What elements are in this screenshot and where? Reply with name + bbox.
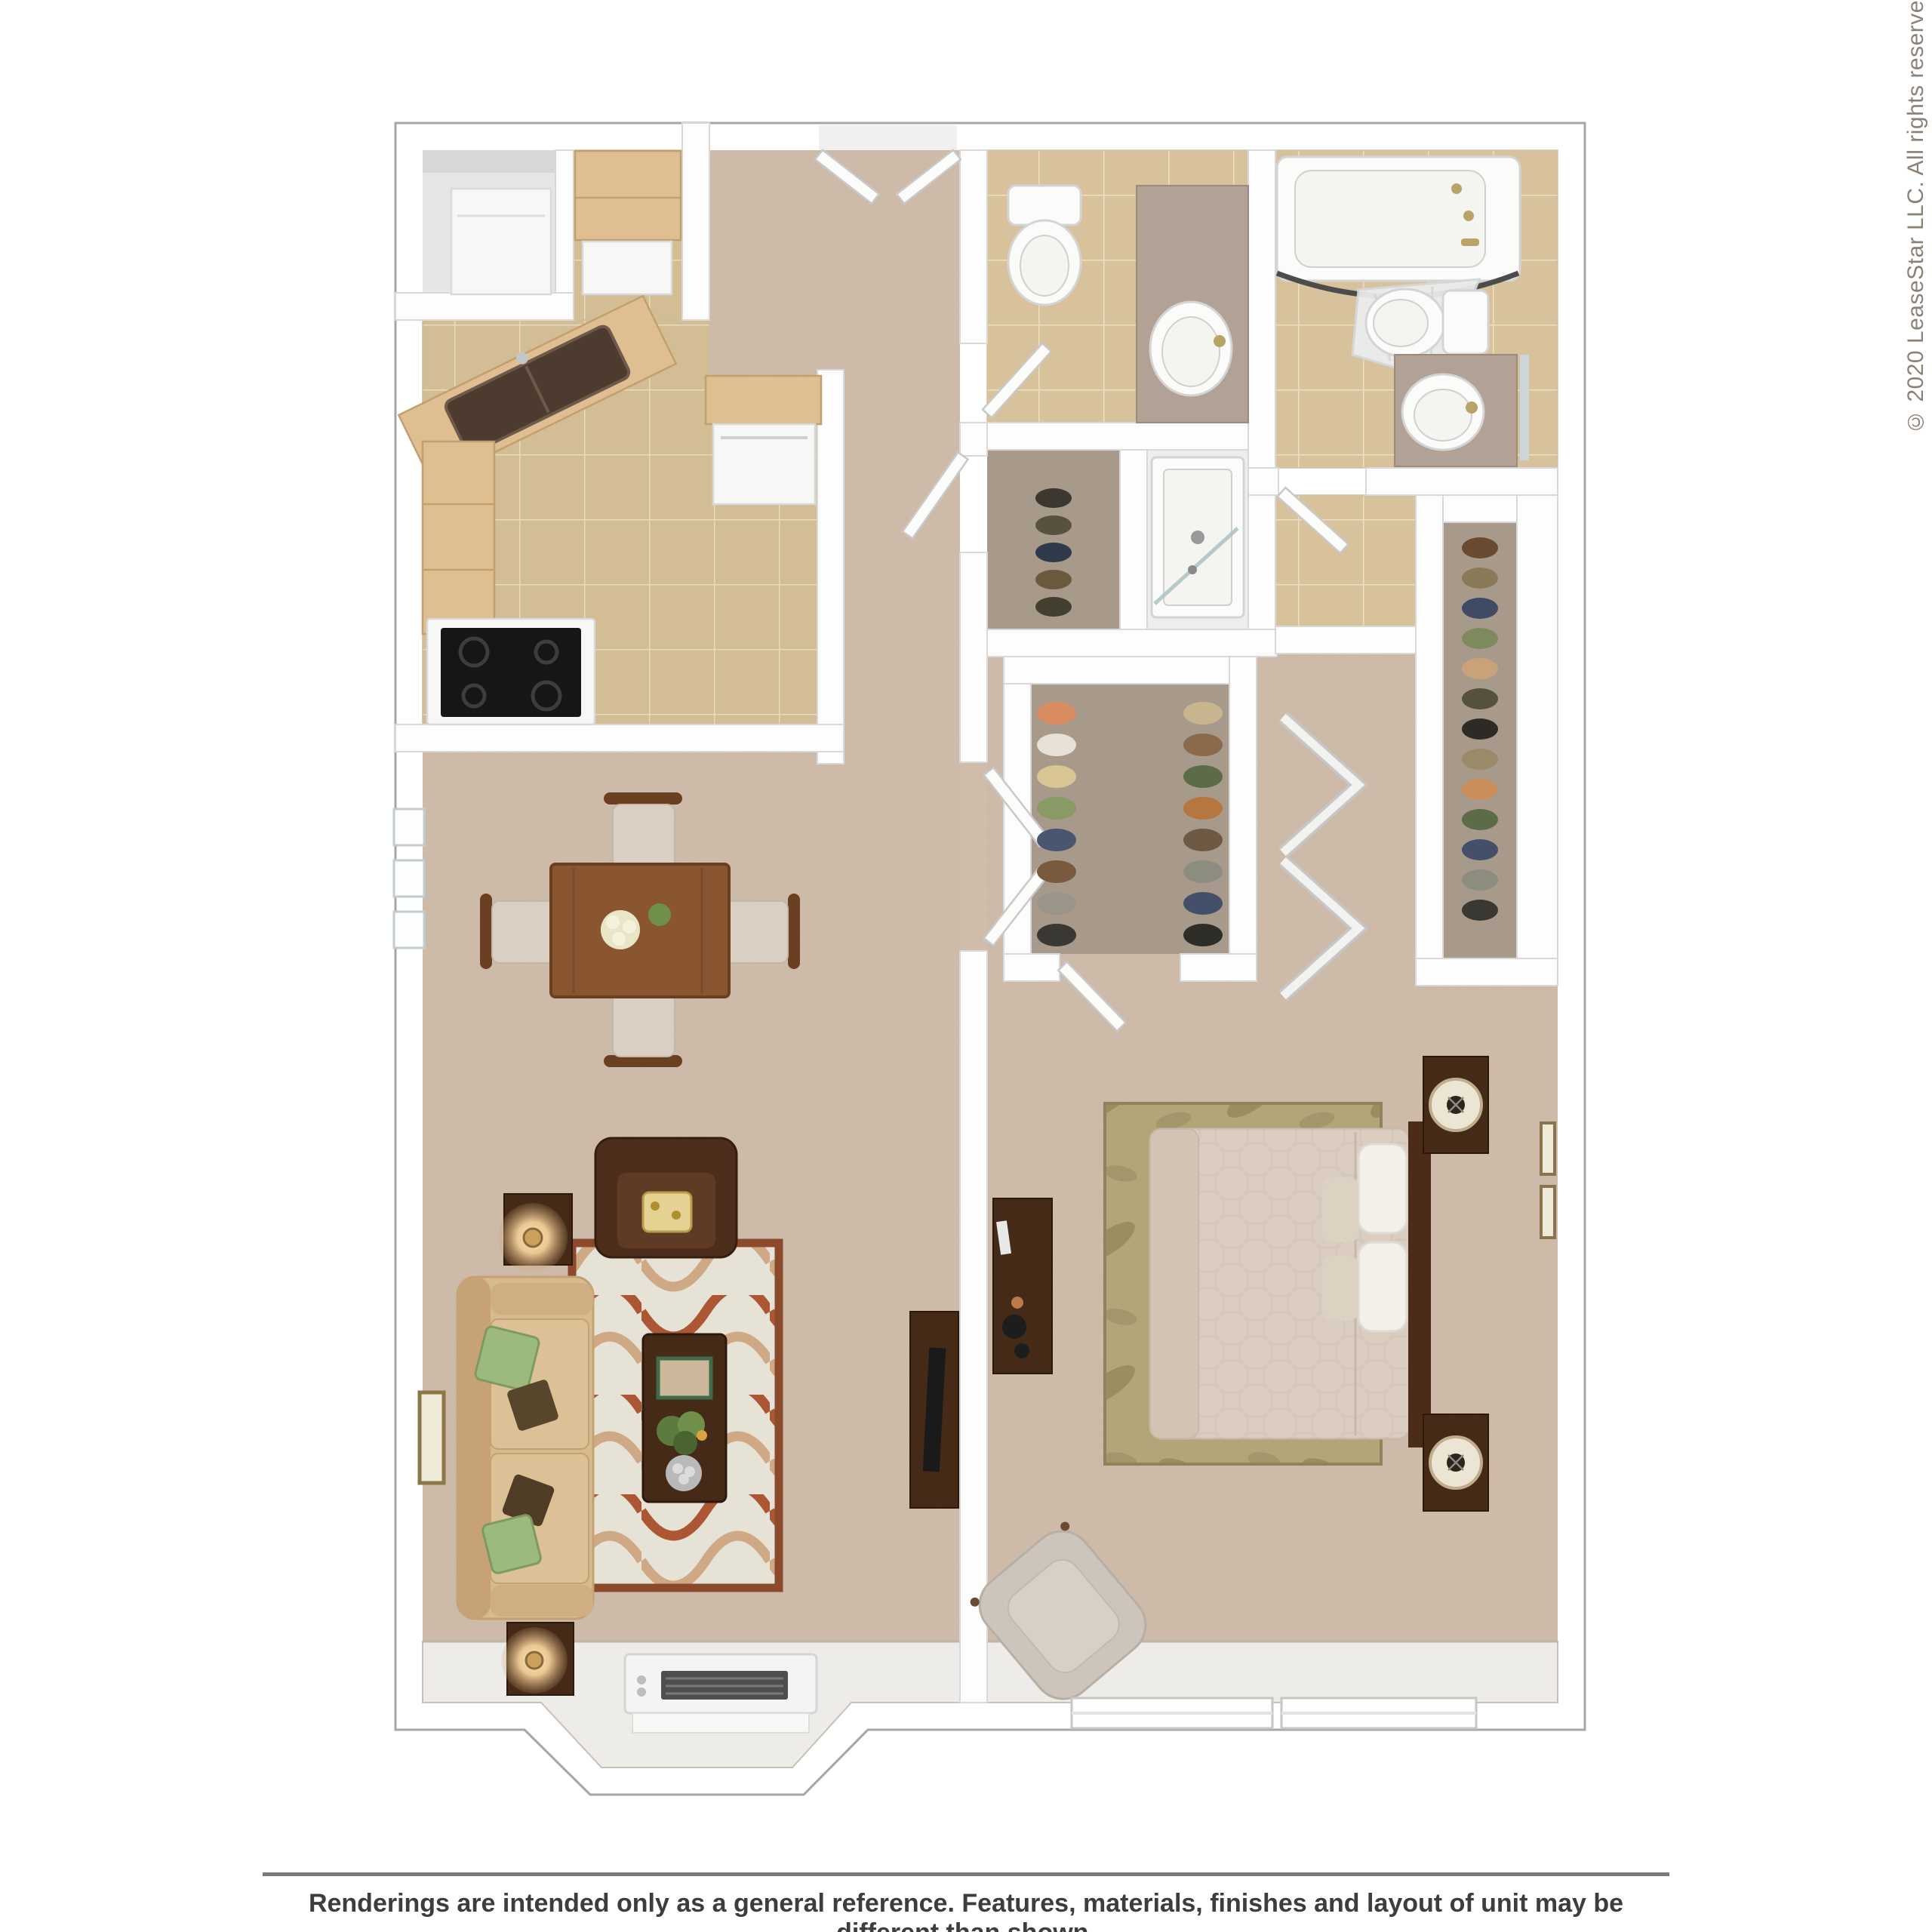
bed-pillow-1 bbox=[1358, 1144, 1407, 1233]
dishwasher-peninsula bbox=[706, 376, 821, 504]
clothing-item bbox=[1035, 597, 1072, 617]
green-pillow-top bbox=[474, 1325, 540, 1391]
dishwasher bbox=[713, 424, 815, 504]
dining-chair-east bbox=[724, 894, 800, 969]
wall-laundry-nook bbox=[555, 150, 574, 293]
nook-upper-cabinet bbox=[575, 151, 681, 198]
wall-baths-divider bbox=[1248, 150, 1275, 657]
wall-kitchen-living bbox=[395, 724, 844, 752]
entry-threshold bbox=[819, 125, 957, 150]
closet-wall-east bbox=[1517, 495, 1558, 986]
walkin-wall-east bbox=[1229, 657, 1257, 981]
clothing-item bbox=[1462, 718, 1498, 740]
wall-kitchen-hall bbox=[817, 370, 844, 764]
laundry-appliance bbox=[451, 189, 551, 294]
clothing-item bbox=[1462, 658, 1498, 679]
clothing-item bbox=[1035, 515, 1072, 535]
wall-linen-south bbox=[1275, 626, 1416, 654]
master-bath-mirror bbox=[1520, 355, 1529, 460]
clothing-item bbox=[1035, 543, 1072, 562]
side-table-north bbox=[498, 1194, 572, 1272]
master-toilet bbox=[1366, 289, 1488, 357]
clothing-item bbox=[1462, 900, 1498, 921]
clothing-item bbox=[1183, 702, 1223, 724]
closet-wall-west bbox=[1416, 495, 1443, 986]
half-bath-faucet bbox=[1214, 335, 1226, 347]
living-window-2 bbox=[394, 860, 424, 897]
half-bath-toilet bbox=[1008, 186, 1081, 305]
copyright-notice: © 2020 LeaseStar LLC. All rights reserve… bbox=[1903, 23, 1929, 434]
wall-laundry-south bbox=[395, 293, 574, 320]
bathtub bbox=[1277, 157, 1520, 281]
master-faucet bbox=[1466, 401, 1478, 414]
stove-cooktop bbox=[441, 628, 581, 717]
dresser bbox=[993, 1198, 1052, 1374]
clothing-item bbox=[1037, 797, 1076, 820]
nook-cart bbox=[583, 241, 672, 294]
clothing-item bbox=[1462, 537, 1498, 558]
accent-armchair bbox=[595, 1138, 737, 1257]
closet-wall-north bbox=[1443, 495, 1517, 522]
kitchen-left-counter bbox=[423, 441, 494, 634]
wall-art-living bbox=[420, 1392, 444, 1483]
accent-pillow-1 bbox=[1322, 1177, 1358, 1242]
walkin-wall-north bbox=[1004, 657, 1257, 684]
tv-console bbox=[910, 1312, 958, 1508]
wall-hall-bath-upper bbox=[960, 150, 987, 343]
clothing-item bbox=[1037, 829, 1076, 851]
clothing-item bbox=[1462, 839, 1498, 860]
bed bbox=[1150, 1121, 1431, 1447]
clothing-item bbox=[1462, 779, 1498, 800]
living-window-1 bbox=[394, 809, 424, 845]
range-stove bbox=[427, 619, 595, 724]
clothing-item bbox=[1037, 734, 1076, 756]
clothing-item bbox=[1037, 892, 1076, 915]
wall-hall-closet bbox=[960, 552, 987, 762]
headboard bbox=[1408, 1121, 1431, 1447]
table-plant bbox=[648, 903, 671, 926]
wall-halfbath-south bbox=[987, 423, 1248, 450]
clothing-item bbox=[1183, 892, 1223, 915]
dining-chair-north bbox=[604, 792, 682, 868]
living-window-3 bbox=[394, 912, 424, 948]
clothing-item bbox=[1183, 734, 1223, 756]
dining-chair-west bbox=[480, 894, 555, 969]
clothing-item bbox=[1462, 688, 1498, 709]
master-vanity bbox=[1395, 355, 1517, 466]
clothing-item bbox=[1037, 765, 1076, 788]
clothing-item bbox=[1462, 598, 1498, 619]
wall-nook-entry bbox=[682, 123, 709, 320]
closet-wall-south bbox=[1416, 958, 1558, 986]
nook-counter bbox=[575, 198, 681, 240]
laundry-closet-shadow bbox=[423, 150, 555, 173]
clothing-item bbox=[1037, 702, 1076, 724]
green-pillow-bottom bbox=[481, 1514, 542, 1574]
walkin-wall-south-b bbox=[1180, 954, 1257, 981]
clothing-item bbox=[1462, 628, 1498, 649]
clothing-item bbox=[1462, 568, 1498, 589]
wall-masterbath-south bbox=[1366, 468, 1558, 495]
wall-art-bedroom-1 bbox=[1541, 1123, 1555, 1174]
coffee-table-tray bbox=[658, 1358, 711, 1398]
shower-door-handle bbox=[1188, 565, 1197, 574]
clothing-item bbox=[1183, 860, 1223, 883]
tub-spout bbox=[1461, 238, 1479, 246]
half-bath-vanity bbox=[1137, 186, 1248, 423]
walkin-wall-south-a bbox=[1004, 954, 1060, 981]
west-wall-windows bbox=[394, 809, 424, 948]
accent-pillow bbox=[643, 1192, 691, 1232]
shower-drain bbox=[1191, 531, 1204, 544]
coffee-table bbox=[643, 1334, 726, 1502]
shower-room bbox=[1152, 457, 1244, 617]
wall-masterbath-south-left bbox=[1248, 468, 1278, 495]
wall-closet-shower bbox=[1120, 450, 1147, 657]
wall-hall-bath-mid bbox=[960, 423, 987, 456]
clothing-item bbox=[1462, 809, 1498, 830]
footer-divider bbox=[263, 1872, 1669, 1876]
disclaimer-text: Renderings are intended only as a genera… bbox=[264, 1889, 1668, 1932]
clothing-item bbox=[1035, 488, 1072, 508]
wall-bath-bedroom bbox=[987, 629, 1277, 657]
bedroom-doorway-carpet bbox=[960, 761, 990, 952]
sofa bbox=[457, 1277, 593, 1619]
wall-art-bedroom-2 bbox=[1541, 1186, 1555, 1238]
clothing-item bbox=[1037, 860, 1076, 883]
clothing-item bbox=[1183, 797, 1223, 820]
clothing-item bbox=[1035, 570, 1072, 589]
floor-plan-rendering bbox=[0, 0, 1932, 1932]
clothing-item bbox=[1462, 749, 1498, 770]
clothing-item bbox=[1037, 924, 1076, 946]
nightstand-north bbox=[1423, 1057, 1488, 1153]
ptac-unit bbox=[625, 1654, 817, 1733]
clothing-item bbox=[1183, 924, 1223, 946]
walkin-wall-west bbox=[1004, 684, 1031, 981]
side-table-south bbox=[501, 1623, 574, 1695]
bed-pillow-2 bbox=[1358, 1242, 1407, 1331]
nightstand-south bbox=[1423, 1414, 1488, 1511]
clothing-item bbox=[1462, 869, 1498, 891]
bed-foot-fold bbox=[1150, 1129, 1198, 1438]
clothing-item bbox=[1183, 765, 1223, 788]
decor-bowl bbox=[666, 1455, 702, 1491]
floorplan-page: © 2020 LeaseStar LLC. All rights reserve… bbox=[0, 0, 1932, 1932]
dining-chair-south bbox=[604, 993, 682, 1067]
clothing-item bbox=[1183, 829, 1223, 851]
accent-pillow-2 bbox=[1322, 1256, 1358, 1321]
